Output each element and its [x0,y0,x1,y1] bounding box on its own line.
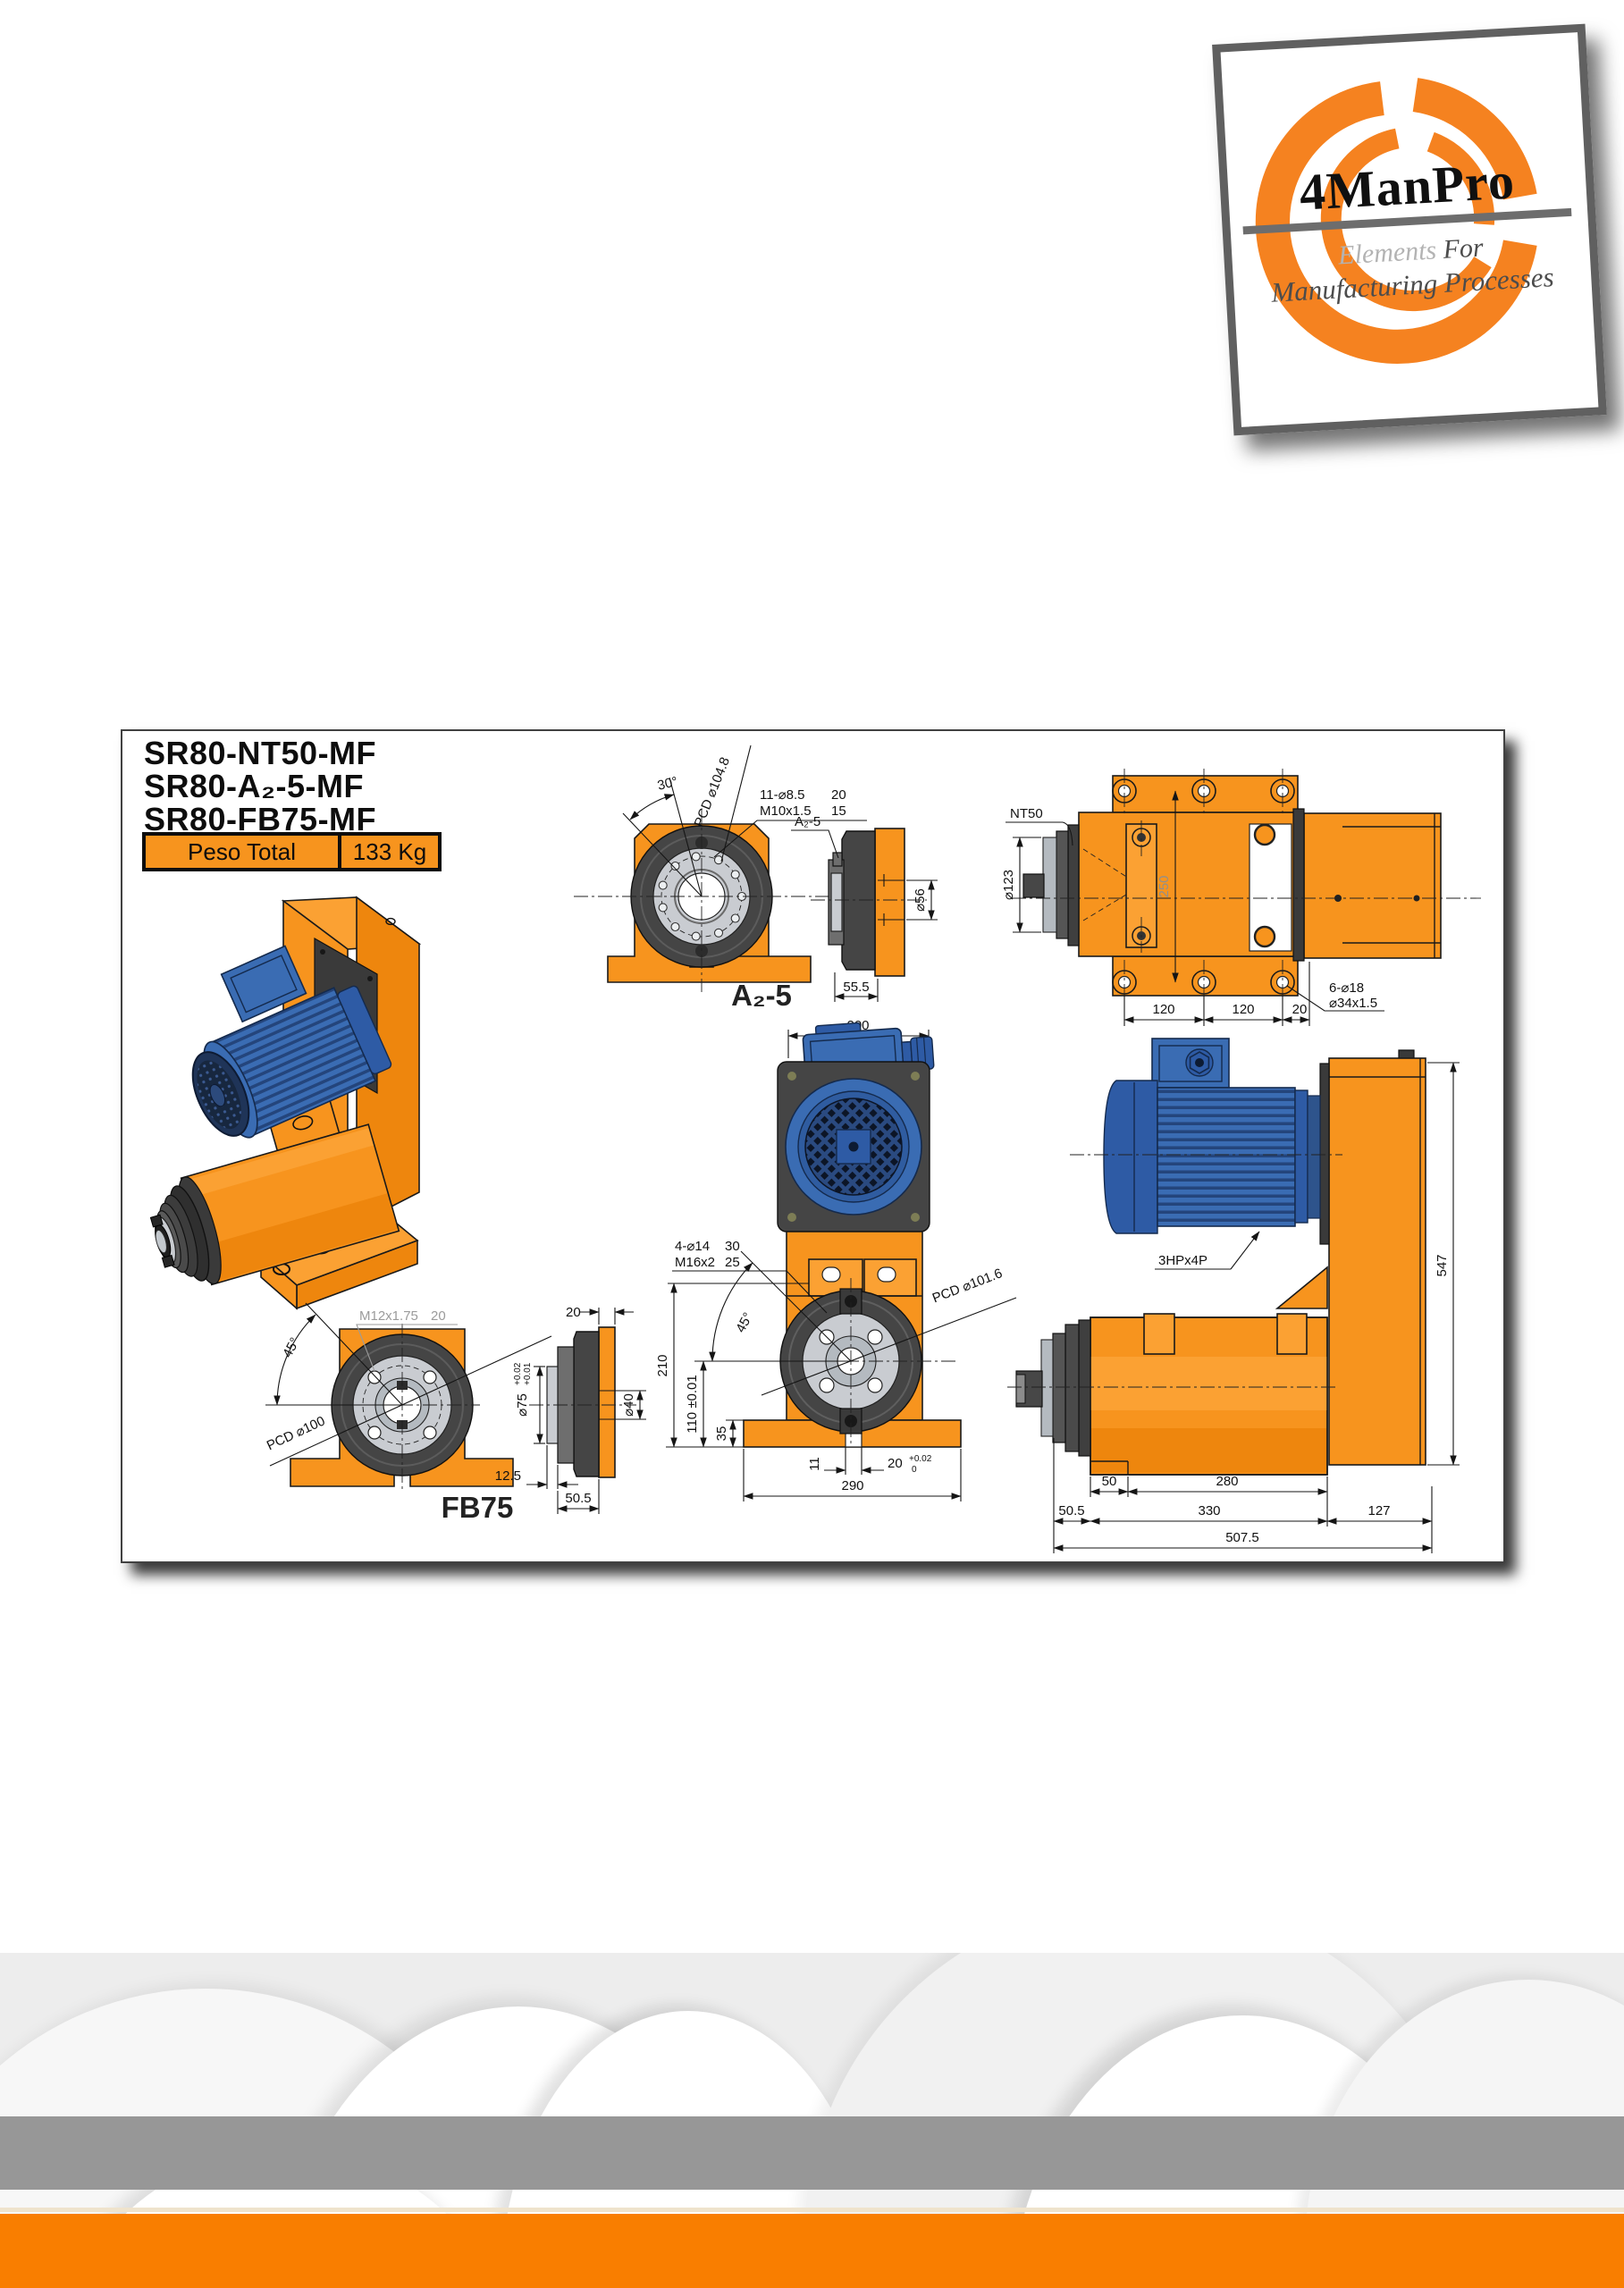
front-note-1: 4-⌀14 [675,1239,710,1254]
top-dim-120b: 120 [1232,1002,1254,1017]
front-pcd-dim: PCD ⌀101.6 [930,1266,1005,1306]
a25-side-view: ⌀56 55.5 A₂-5 [791,814,938,1002]
top-view: NT50 ⌀123 250 120 120 20 6-⌀18 ⌀34x1.5 [1001,769,1481,1026]
a25-depth-dim: 55.5 [843,980,869,995]
fb75-d125-dim: 12.5 [495,1468,521,1484]
fb75-thread-note: M12x1.75 [359,1308,418,1324]
fb75-d505-dim: 50.5 [565,1491,591,1506]
logo-card: 4ManPro Elements For Manufacturing Proce… [1212,24,1607,436]
fb75-diain-dim: ⌀40 [621,1393,636,1417]
side-d127-dim: 127 [1367,1503,1390,1518]
a25-caption: A₂-5 [731,979,792,1012]
fb75-pcd-dim: PCD ⌀100 [265,1413,328,1453]
front-note-2: M16x2 [675,1255,715,1270]
top-dim-20: 20 [1292,1002,1308,1017]
footer-orange-band [0,2214,1624,2288]
a25-side-label: A₂-5 [795,814,820,829]
fb75-tolinf: +0.01 [523,1362,533,1385]
footer-cream-line [0,2208,1624,2212]
fb75-diaout-dim: ⌀75 [515,1393,530,1417]
a25-pcd-dim: PCD ⌀104.8 [692,755,734,829]
side-d505-dim: 50.5 [1058,1503,1084,1518]
fb75-caption: FB75 [442,1491,514,1524]
a25-note-2v: 15 [831,803,846,819]
a25-angle-dim: 30° [656,774,679,794]
side-view: 3HPx4P 547 50 280 50.5 330 127 [1007,1039,1460,1553]
front-keyw-tolinf: 0 [912,1465,917,1475]
fb75-tolsup: +0.02 [513,1362,523,1385]
fb75-side-view: 20 ⌀75 +0.02 +0.01 ⌀40 12.5 50.5 [495,1305,646,1514]
side-d280-dim: 280 [1216,1474,1238,1489]
fb75-angle-dim: 45° [280,1335,303,1360]
side-d330-dim: 330 [1198,1503,1220,1518]
front-note-2v: 25 [725,1255,740,1270]
front-base-dim: 290 [841,1478,863,1493]
side-motor-label: 3HPx4P [1158,1253,1207,1268]
top-note-2: ⌀34x1.5 [1329,996,1377,1011]
fb75-thread-val: 20 [431,1308,446,1324]
front-view: 200 [655,1018,1016,1501]
side-motor [1070,1039,1342,1233]
a25-note-1v: 20 [831,787,846,803]
front-hbase-dim: 35 [714,1426,729,1442]
side-height-dim: 547 [1435,1254,1450,1276]
front-keyw-dim: 20 [888,1456,903,1471]
tagline-elements: Elements [1337,235,1437,270]
fb75-front-view: 45° PCD ⌀100 M12x1.75 20 FB75 [265,1303,551,1524]
top-dia-dim: ⌀123 [1001,870,1016,900]
front-note-1v: 30 [725,1239,740,1254]
tagline-for: For [1443,232,1485,264]
front-hcenter-dim: 110 ±0.01 [685,1375,700,1434]
front-htotal-dim: 210 [655,1354,670,1376]
side-total-dim: 507.5 [1225,1530,1259,1545]
a25-front-view: 30° PCD ⌀104.8 11-⌀8.5 20 M10x1.5 15 A₂-… [574,745,867,1012]
front-keyw-tolsup: +0.02 [909,1454,932,1464]
top-depth-dim: 250 [1157,875,1172,897]
front-angle-dim: 45° [733,1310,756,1335]
drawing-panel: SR80-NT50-MF SR80-A₂-5-MF SR80-FB75-MF P… [121,729,1505,1563]
footer-gray-band [0,2116,1624,2190]
top-dim-120a: 120 [1152,1002,1174,1017]
top-taper-label: NT50 [1010,806,1043,821]
isometric-view [131,897,419,1308]
front-keyoff-dim: 11 [807,1457,822,1471]
a25-dia-dim: ⌀56 [913,888,928,912]
side-d50-dim: 50 [1102,1474,1117,1489]
a25-note-1: 11-⌀8.5 [760,787,804,803]
top-note-1: 6-⌀18 [1329,980,1364,996]
fb75-d20-dim: 20 [566,1305,581,1320]
